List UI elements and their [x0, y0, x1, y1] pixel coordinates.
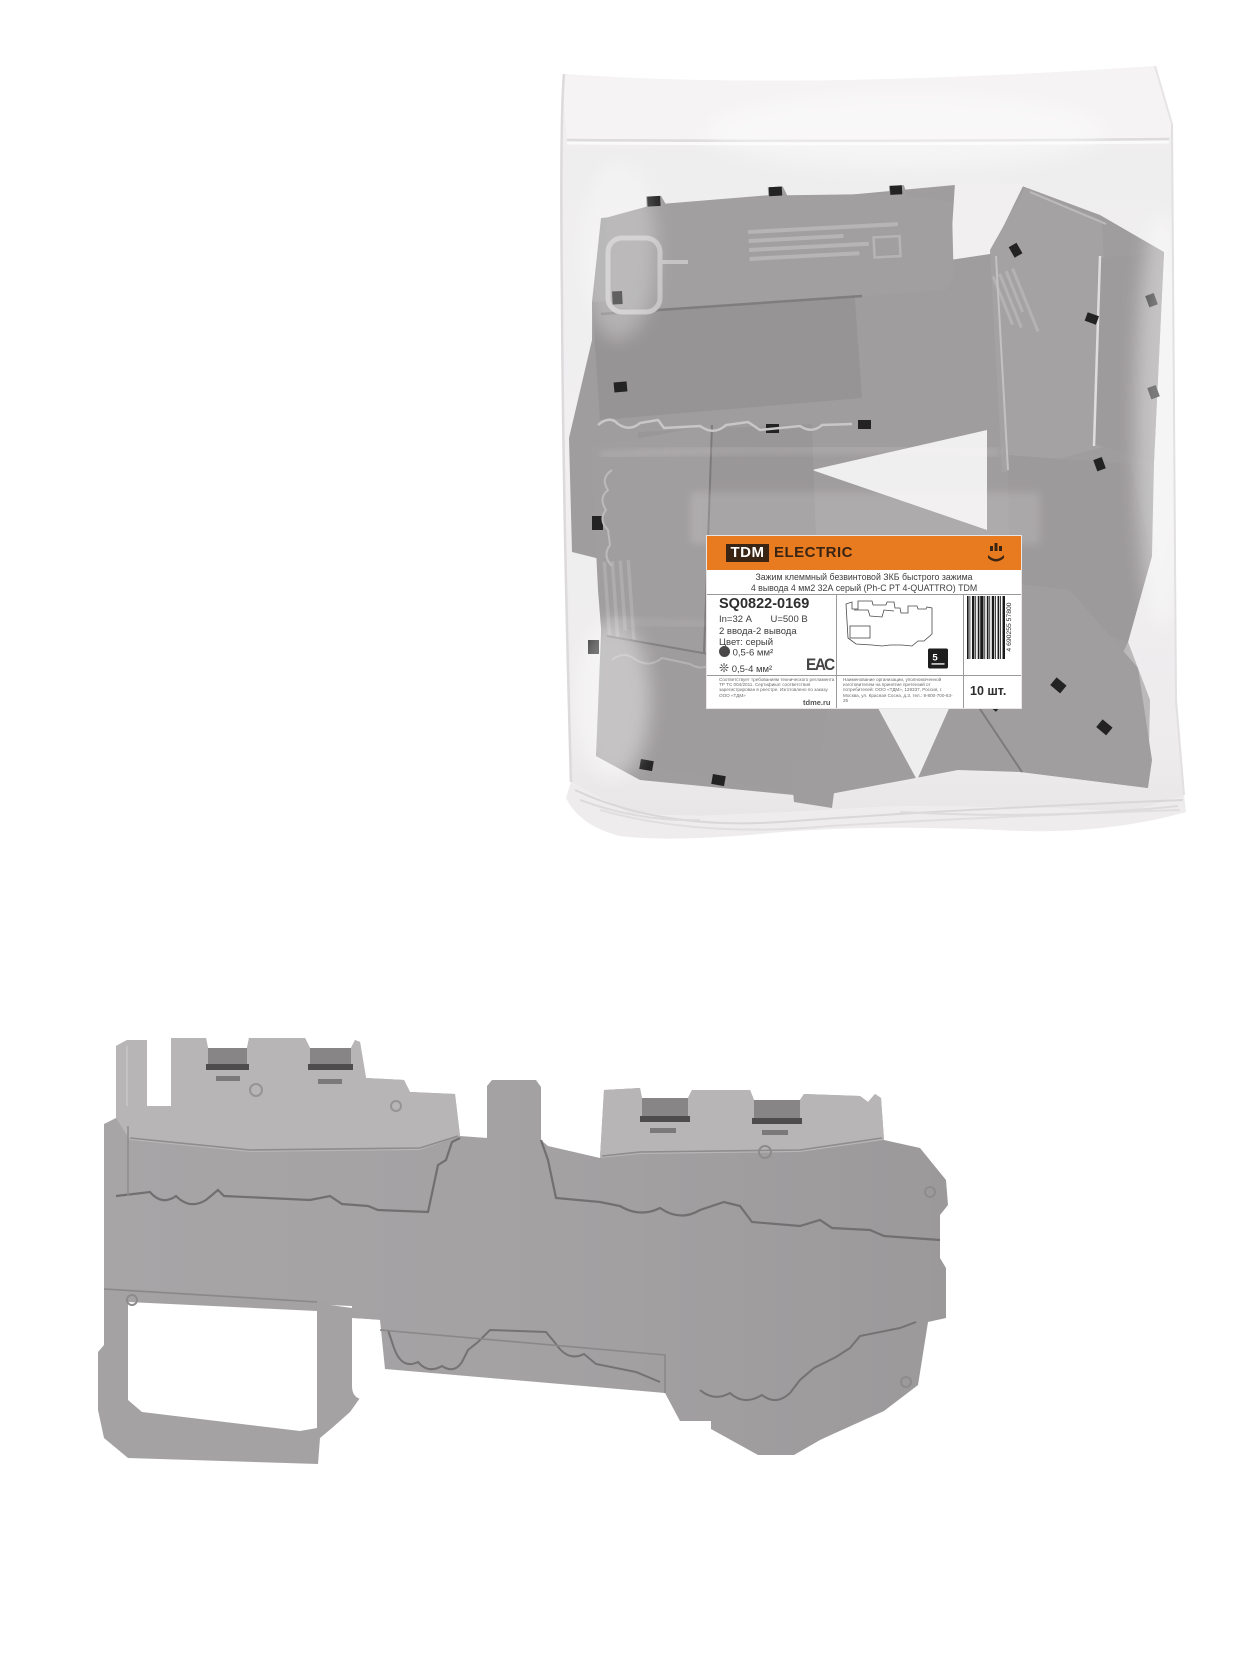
svg-text:5: 5: [932, 653, 938, 664]
